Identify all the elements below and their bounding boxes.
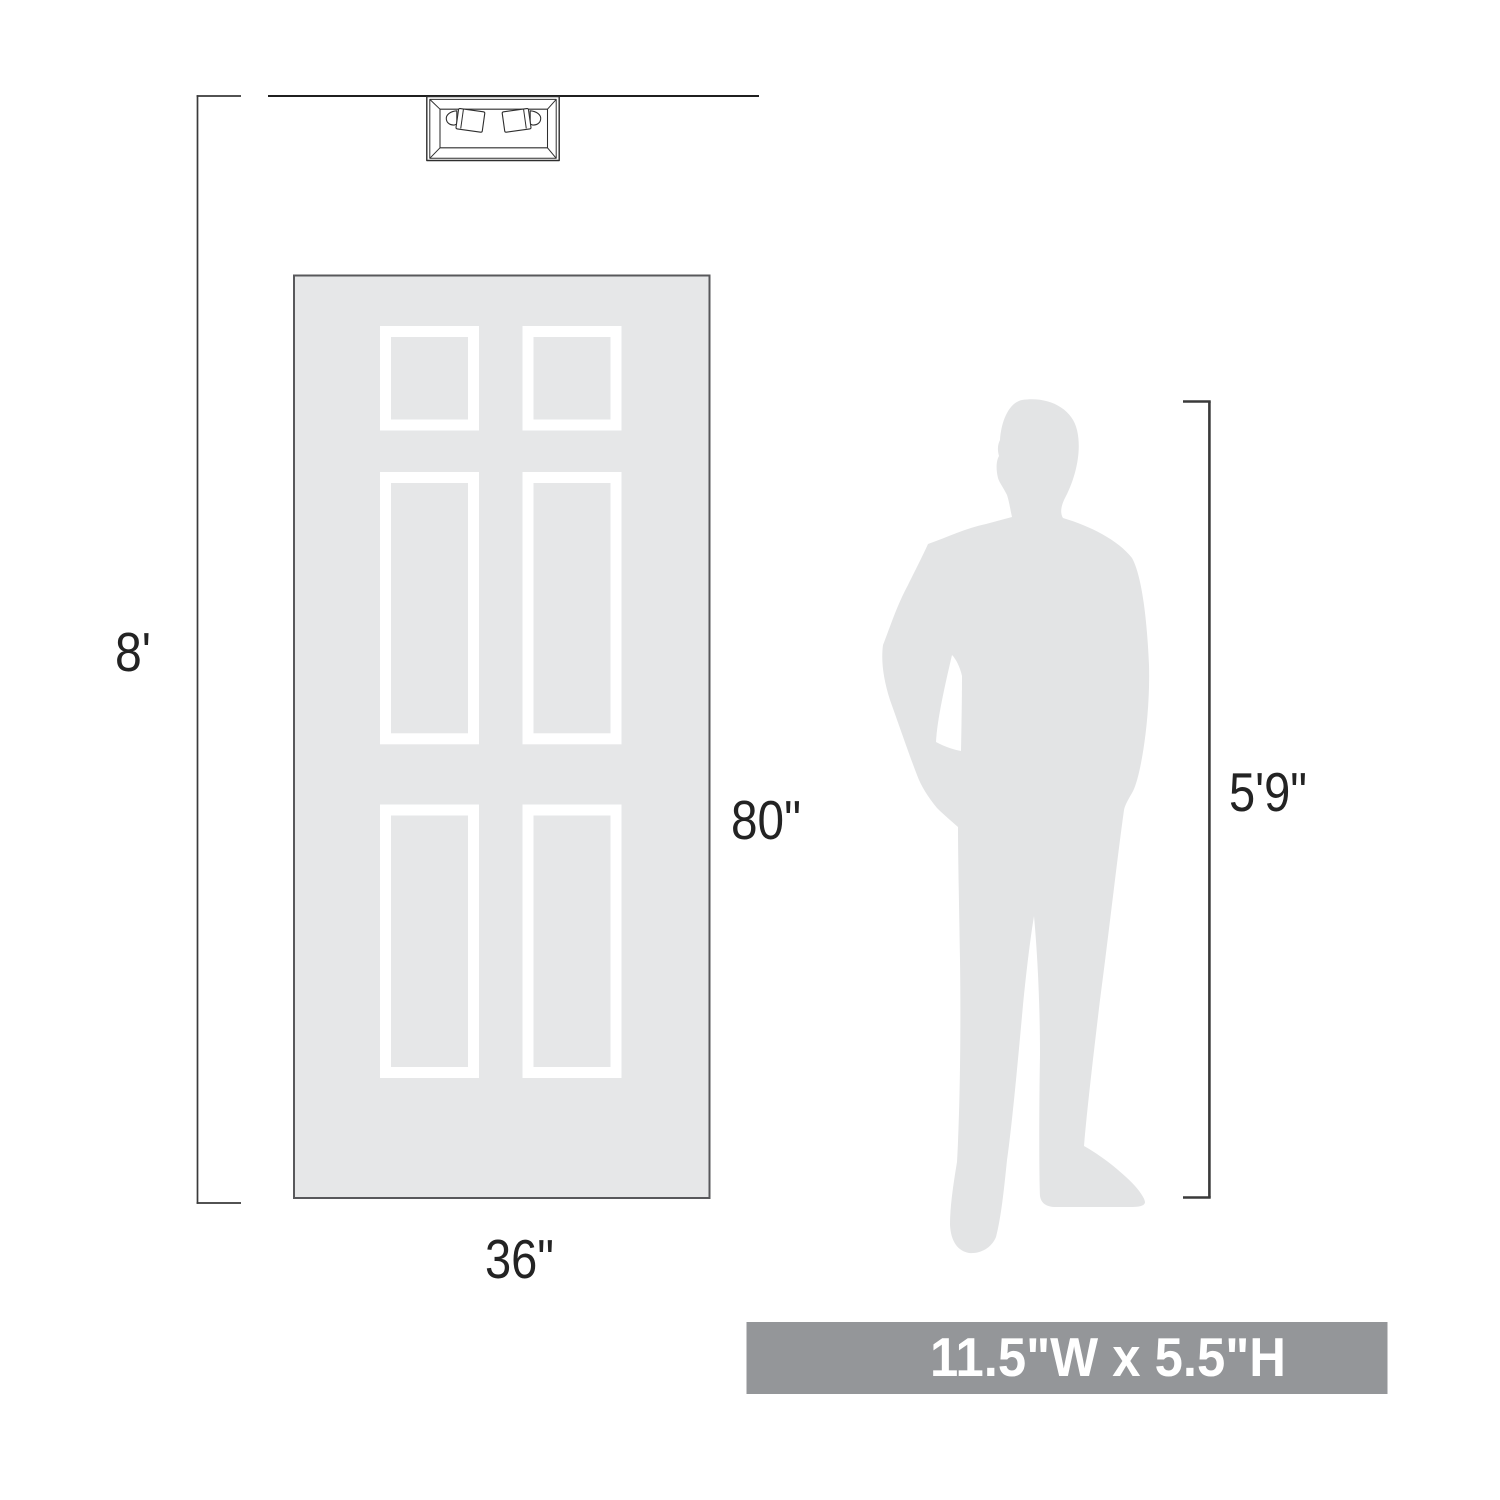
svg-text:11.5"W x 5.5"H: 11.5"W x 5.5"H (930, 1326, 1286, 1388)
svg-text:80": 80" (731, 789, 801, 851)
svg-text:5'9": 5'9" (1229, 761, 1307, 823)
svg-text:36": 36" (485, 1228, 554, 1290)
svg-text:8': 8' (115, 621, 151, 683)
